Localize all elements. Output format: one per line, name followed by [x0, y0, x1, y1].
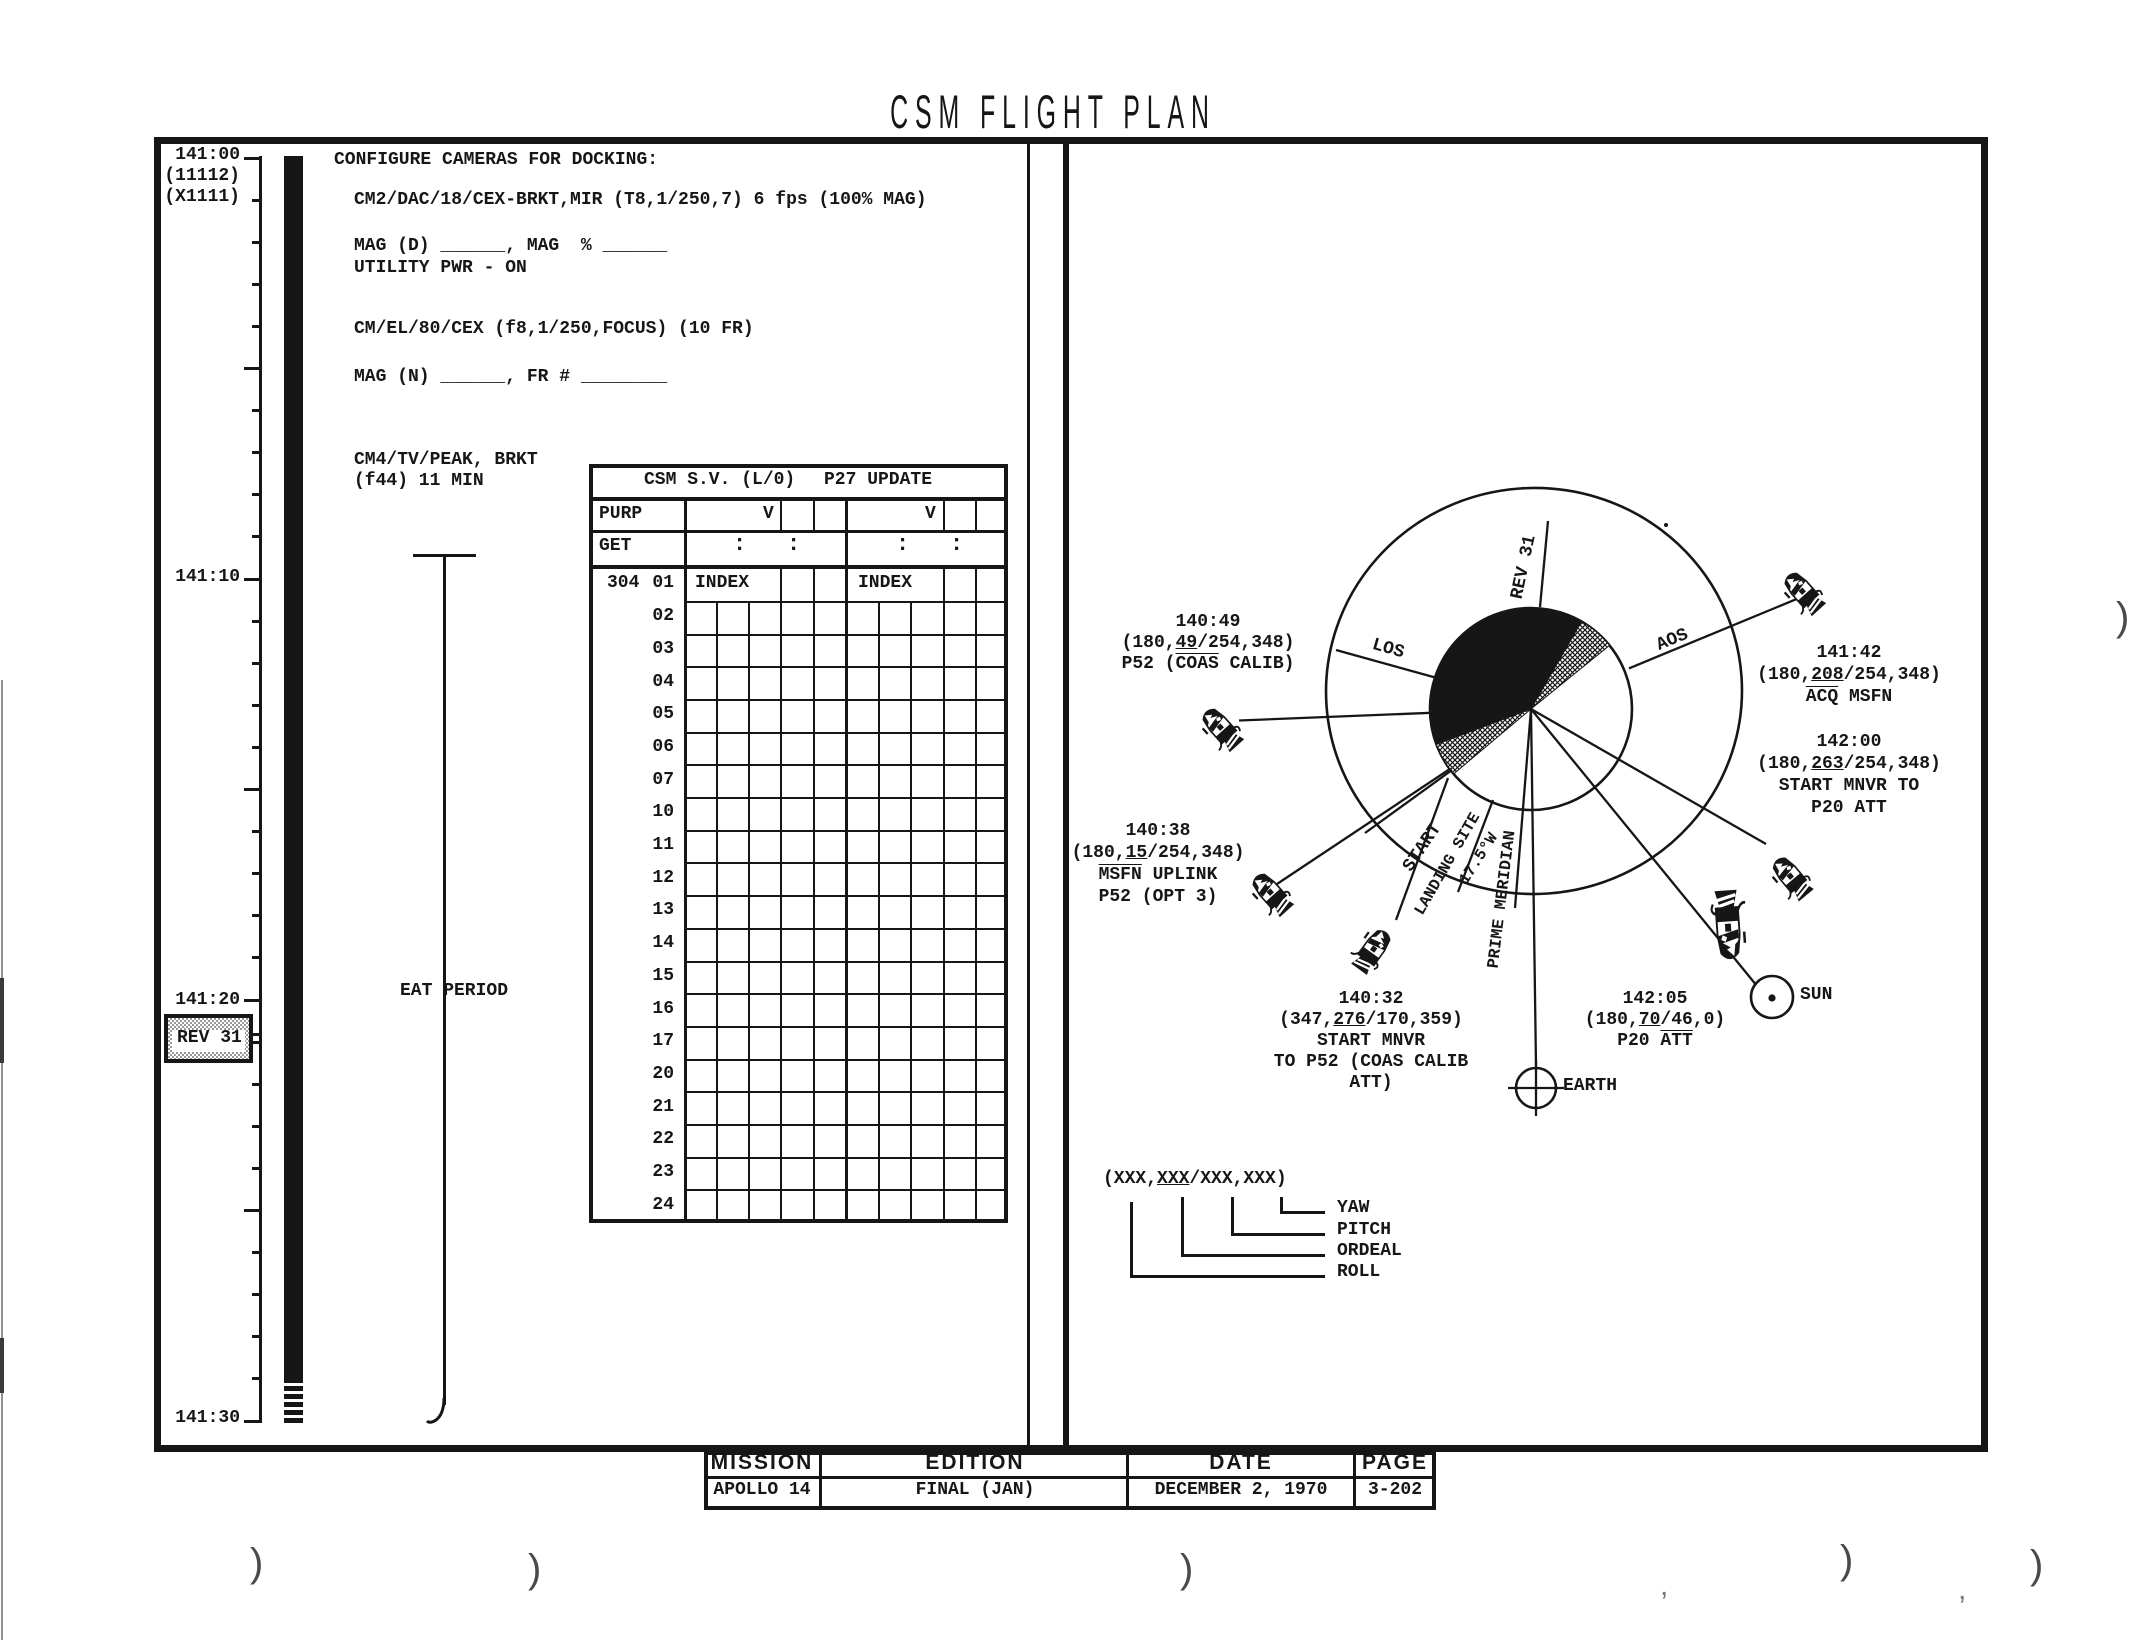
- svg-text:AOS: AOS: [1654, 625, 1692, 656]
- svg-text:LOS: LOS: [1370, 635, 1407, 663]
- svg-text:REV 31: REV 31: [1508, 533, 1541, 601]
